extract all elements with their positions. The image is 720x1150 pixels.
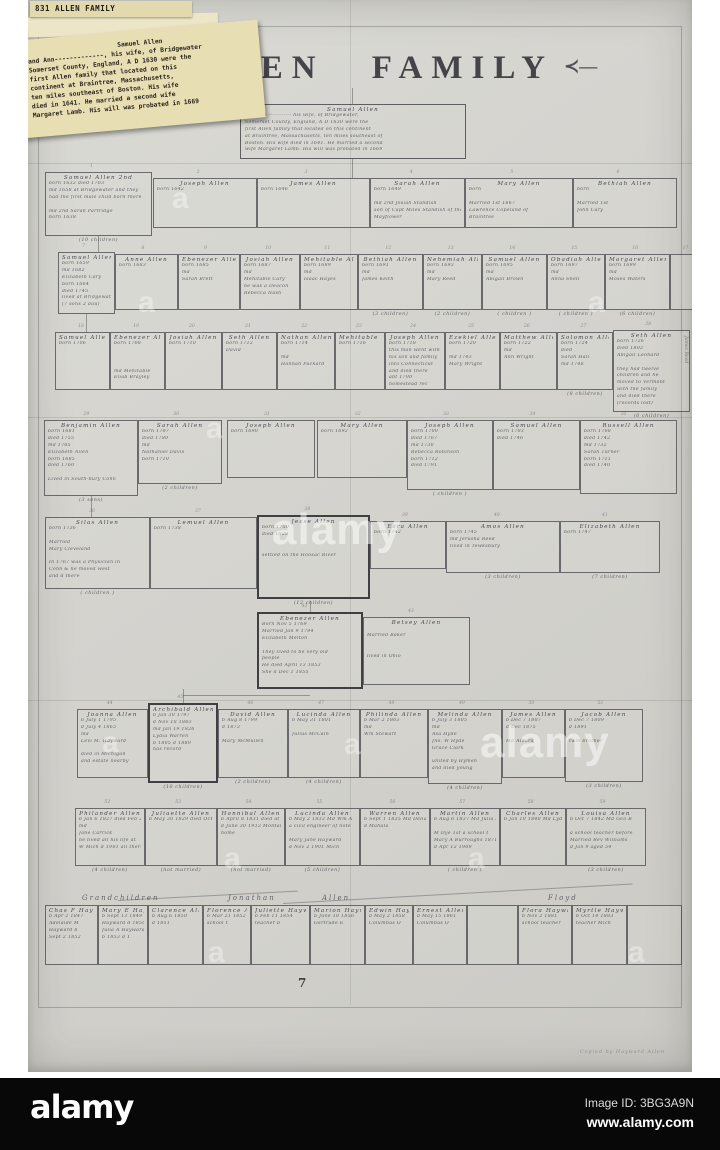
children-note: (not married) — [145, 868, 217, 873]
person-line: Married — [49, 540, 146, 547]
person-line: Md Almira — [506, 739, 561, 746]
box-number: 59 — [600, 800, 606, 805]
box-number: 21 — [245, 324, 251, 329]
person-line: d Jan 9 aged 54 — [570, 845, 642, 852]
person-line: md — [81, 732, 144, 739]
person-box: Ezekiel Allenborn 1720 md 1743Mary Wrigh… — [445, 332, 500, 390]
person-box: Mehitable Allenborn 1689mdIsaac Hayes — [300, 254, 358, 310]
person-line: Mehitable Cary — [244, 277, 296, 284]
person-box: Nehemiah Allenborn 1693mdMary Reed — [423, 254, 482, 310]
person-line: b July 1 1795 — [81, 718, 144, 725]
person-line: born 1693 — [427, 263, 478, 270]
box-number: 55 — [317, 800, 323, 805]
person-line: born 1747 — [564, 530, 656, 537]
box-number: 32 — [355, 412, 361, 417]
person-box: Ernest Allenb May 15 1861Columbus O — [413, 905, 467, 965]
box-number: 42 — [302, 604, 308, 609]
person-line: d Nov 10 1883 — [153, 720, 213, 727]
person-line: born 1720 — [449, 341, 496, 348]
person-line: and died there — [617, 394, 686, 401]
person-line — [222, 732, 284, 739]
person-line — [281, 348, 331, 355]
person-line: born 1642 — [157, 187, 253, 194]
person-line: md 1730 — [411, 443, 489, 450]
person-line: Sarah Brett — [182, 277, 236, 284]
person-line: James Keith — [362, 277, 419, 284]
person-line: born 1711 — [584, 457, 673, 464]
person-line — [49, 202, 148, 209]
children-note: (not married) — [217, 868, 285, 873]
person-line: b May 30 1829 died Oct 2 — [149, 817, 213, 824]
person-line: d 1891 — [569, 725, 639, 732]
box-number: 17 — [683, 246, 689, 251]
person-line: Grace Clark — [432, 746, 498, 753]
person-line: lived in Ohio — [367, 654, 466, 661]
person-line — [114, 348, 161, 355]
alamy-url: www.alamy.com — [587, 1114, 694, 1130]
children-note: (2 children) — [138, 486, 222, 491]
person-line: Hayward b — [49, 928, 94, 935]
person-line: md — [551, 270, 601, 277]
person-line: Mary Cleveland — [49, 547, 146, 554]
person-box: Obadiah Allenborn 1697mdAnna Snell — [547, 254, 605, 310]
person-line: lived in Tewksbury — [450, 544, 556, 551]
person-line: died 1742 — [584, 436, 673, 443]
box-number: 33 — [443, 412, 449, 417]
person-line: Elizabeth Allen — [48, 450, 134, 457]
person-box: Martin Allenb Aug 6 1837 Md Julia S M Dy… — [430, 808, 500, 866]
person-box: Samuel Allen 3rdborn 1659md 1682Elizabet… — [58, 252, 115, 314]
person-line: born 1695 — [486, 263, 543, 270]
person-box — [467, 905, 518, 965]
person-box: Seth Allenborn 1726died 1802Abigail Leon… — [613, 330, 690, 412]
children-note: (2 children) — [218, 780, 288, 785]
person-line — [434, 824, 496, 831]
person-line: born 1664 — [62, 282, 111, 289]
person-line: died 1740 — [584, 463, 673, 470]
box-number: 13 — [448, 246, 454, 251]
section-header: Allen — [322, 894, 350, 902]
box-number: 8 — [141, 246, 144, 251]
person-line: d 1851 — [152, 921, 199, 928]
children-note: (3 children) — [565, 784, 643, 789]
person-box: Joseph Allenborn 1718this man went withh… — [385, 332, 445, 390]
person-line: md 1743 — [449, 355, 496, 362]
box-number: 41 — [602, 513, 608, 518]
box-number: 43 — [408, 609, 414, 614]
person-line: d June 30 1912 Montana — [221, 824, 281, 831]
box-number: 57 — [459, 800, 465, 805]
person-line: Ann Wright — [504, 355, 553, 362]
person-line: he lived all his life at — [79, 838, 141, 845]
person-line: md — [427, 270, 478, 277]
person-line — [367, 647, 466, 654]
person-line: school t — [207, 921, 247, 928]
person-line: Mary Reed — [427, 277, 478, 284]
person-line: Hayward d 1850 — [102, 921, 144, 928]
person-line: and estate nearby — [81, 759, 144, 766]
person-line: Rebecca Robinson — [411, 450, 489, 457]
person-line: b Mar 2 1803 — [364, 718, 424, 725]
person-line: Elizabeth Melton — [262, 636, 358, 643]
person-box: Elizabeth Allenborn 1747 — [560, 521, 660, 573]
person-line: died in Michigan — [81, 752, 144, 759]
person-line: md — [362, 270, 419, 277]
person-line: md — [142, 443, 218, 450]
person-line — [262, 539, 365, 546]
person-box: Lemuel Allenborn 1738 — [150, 517, 257, 589]
person-line: md — [244, 270, 296, 277]
person-line: and d there — [49, 574, 146, 581]
box-number: 24 — [410, 324, 416, 329]
person-line: b Jan 6 1827 died Feb 26 — [79, 817, 141, 824]
person-box: Mary Allenborn 1692 — [317, 420, 407, 478]
box-number: 15 — [571, 246, 577, 251]
person-box: Joseph Allenborn 1642 — [153, 178, 257, 228]
person-line: Sarah Hall — [561, 355, 609, 362]
box-number: 34 — [530, 412, 536, 417]
person-line: home — [221, 831, 281, 838]
box-number: 54 — [246, 800, 252, 805]
person-line: born 1745 — [450, 530, 556, 537]
box-number: 16 — [632, 246, 638, 251]
person-box: Bethiah Allenborn Married 1stJohn Cary — [573, 178, 677, 228]
children-note: (5 children) — [285, 868, 360, 873]
box-number: 28 — [645, 322, 651, 327]
person-line — [292, 725, 356, 732]
children-note: (8 children) — [557, 392, 613, 397]
person-box — [627, 905, 682, 965]
person-line: b Jan 30 1797 — [153, 713, 213, 720]
person-line: md — [281, 355, 331, 362]
person-box: Marion Haywardb June 10 1856Gertrude E — [310, 905, 365, 965]
person-line — [262, 546, 365, 553]
children-note: (12 children) — [257, 601, 370, 606]
compiler-note: Copied by Hayward Allen — [580, 1050, 665, 1055]
section-header: Grandchildren — [82, 894, 160, 902]
person-box: Ebenezer Allenborn 1708 md MehitableElia… — [110, 332, 165, 390]
person-box: Clarence Allenb Aug 6 1850d 1851 — [148, 905, 203, 965]
person-line — [506, 732, 561, 739]
person-line: born 1685 — [182, 263, 236, 270]
person-line: born 1712 — [226, 341, 273, 348]
person-line: born 1750 — [262, 525, 365, 532]
person-line: md 2nd Josiah Standish — [374, 201, 461, 208]
person-name — [631, 908, 678, 914]
person-line: Mayflower — [374, 215, 461, 222]
box-number: 3 — [304, 170, 307, 175]
children-note: (3 sons) — [44, 498, 138, 503]
person-line: b Jan 10 1840 Md Lydia — [504, 817, 562, 824]
person-line: b June 10 1856 — [314, 914, 361, 921]
person-line: born 1687 — [244, 263, 296, 270]
person-line: (7 sons 2 dau) — [62, 302, 111, 309]
box-number: 35 — [621, 412, 627, 417]
person-line — [289, 831, 356, 838]
person-line: b Mar 21 1852 — [207, 914, 247, 921]
person-box: Archibald Allenb Jan 30 1797d Nov 10 188… — [148, 703, 218, 783]
person-box: Josiah Allenborn 1687mdMehitable Caryhe … — [240, 254, 300, 310]
person-box: James Allenborn 1646 — [257, 178, 370, 228]
person-line: a school teacher before — [570, 831, 642, 838]
person-line: Married 1st 1667 — [469, 201, 569, 208]
person-box: Russell Allenborn 1708died 1742md 1732Sa… — [580, 420, 677, 494]
person-line: died 1791 — [411, 463, 489, 470]
person-line: Elizabeth Cary — [62, 275, 111, 282]
person-line: his son and family — [389, 355, 441, 362]
person-box: Samuel Allen 4thborn 1706 — [55, 332, 110, 390]
person-line: born 1716 — [339, 341, 381, 348]
person-line: Eliab Brayley — [114, 375, 161, 382]
person-box: Nathan Allenborn 1714 mdHannah Packard — [277, 332, 335, 390]
section-header: Floyd — [548, 894, 578, 902]
person-line: school teacher — [522, 921, 568, 928]
person-line: Mary McMullen — [222, 739, 284, 746]
person-box: Mehitable Allenborn 1716 — [335, 332, 385, 390]
person-line: born 1710 — [169, 341, 218, 348]
person-box: Charles Allenb Jan 10 1840 Md Lydia — [500, 808, 566, 866]
alamy-footer-bar: alamy Image ID: 3BG3A9N www.alamy.com — [0, 1078, 720, 1150]
person-line: people — [262, 656, 358, 663]
person-line: born 1699 — [609, 263, 666, 270]
children-note: (10 children) — [45, 238, 152, 243]
person-box: Joanna Allenb July 1 1795d July 4 1865md… — [77, 709, 148, 778]
person-box: Anne Allenborn 1683 — [115, 254, 178, 310]
person-line: Columbus O — [417, 921, 463, 928]
person-box: Ezra Allenborn 1742 — [370, 521, 446, 569]
box-number: 53 — [175, 800, 181, 805]
person-line: b May 2 1858 — [369, 914, 409, 921]
person-box: Ebenezer Allenborn 1685mdSarah Brett — [178, 254, 240, 310]
person-line: md 1682 — [62, 268, 111, 275]
person-line: md Jan 19 1826 — [153, 727, 213, 734]
box-number: 19 — [133, 324, 139, 329]
person-line: Wm Stewart — [364, 732, 424, 739]
person-line — [569, 732, 639, 739]
person-line — [674, 263, 692, 270]
children-note: (6 children) — [605, 312, 670, 317]
person-box: Chas F Haywardb Apr 2 1847Adelaide MHayw… — [45, 905, 98, 965]
person-box: Joseph Allenborn 1690 — [227, 420, 315, 478]
person-line: b July 3 1805 — [432, 718, 498, 725]
children-note: ( children ) — [430, 868, 500, 873]
person-line: born 1714 — [281, 341, 331, 348]
person-box: Jesse Allenborn 1750died 1828 settled on… — [257, 515, 370, 599]
margin-note: James Reed — [683, 336, 688, 363]
person-line: died 1780 — [142, 436, 218, 443]
person-box: Bethiah Allenborn 1691mdJames Keith — [358, 254, 423, 310]
person-line: teacher Mich — [576, 921, 623, 928]
page-number: 7 — [298, 976, 306, 990]
person-line: Braintree — [469, 215, 569, 222]
person-line: Jno. W Hyde — [432, 739, 498, 746]
person-line: and died there — [389, 369, 441, 376]
person-line: Sarah Turner — [584, 450, 673, 457]
person-line: born 1710 — [142, 457, 218, 464]
person-box: Benjamin Allenborn 1681died 1755md 1705E… — [44, 420, 138, 496]
box-number: 29 — [83, 412, 89, 417]
person-line — [114, 362, 161, 369]
person-line: died 1760 — [48, 463, 134, 470]
person-line: born 1690 — [231, 429, 311, 436]
box-number: 46 — [247, 701, 253, 706]
person-line — [114, 355, 161, 362]
box-number: 58 — [528, 800, 534, 805]
person-line: born 1649 — [374, 187, 461, 194]
person-line: W Mich d 1901 all there — [79, 845, 141, 852]
person-line: b Aug 6 1837 Md Julia S — [434, 817, 496, 824]
person-line: with the family — [617, 387, 686, 394]
person-box: Sarah Allenborn 1707died 1780mdNathaniel… — [138, 420, 222, 484]
person-line: born 1742 — [374, 530, 442, 537]
person-box — [670, 254, 692, 310]
person-line: Conn & he moved west — [49, 567, 146, 574]
person-line: md — [304, 270, 354, 277]
person-box: Philinda Allenb Mar 2 1803mdWm Stewart — [360, 709, 428, 778]
person-line: has record — [153, 747, 213, 754]
person-line: born 1708 — [114, 341, 161, 348]
person-line: Married Rev Williams — [570, 838, 642, 845]
person-line: Lawrence Copeland of — [469, 208, 569, 215]
person-line: He died April 13 1853 — [262, 663, 358, 670]
person-line: Moses Waters — [609, 277, 666, 284]
person-line: born 1706 — [59, 341, 106, 348]
children-note: (3 children) — [358, 312, 423, 317]
person-line — [374, 194, 461, 201]
person-line: born 1681 — [48, 429, 134, 436]
person-box: Mary E Haywardb Sept 13 1849Hayward d 18… — [98, 905, 148, 965]
box-number: 10 — [265, 246, 271, 251]
person-line: Mary Jane Hayward — [289, 838, 356, 845]
person-line: b May 2 1833 Md Wm A — [289, 817, 356, 824]
box-number: 5 — [510, 170, 513, 175]
person-line: John Cary — [577, 208, 673, 215]
person-box: Myrtle Haywardb Oct 14 1883teacher Mich — [572, 905, 627, 965]
person-line: Rebecca Nash — [244, 291, 296, 298]
person-name — [471, 908, 514, 914]
person-box: David Allenb Aug 8 1799d 1873 Mary McMul… — [218, 709, 288, 778]
person-line: M Dye 1st a school t — [434, 831, 496, 838]
person-line: md — [486, 270, 543, 277]
children-note: ( children ) — [482, 312, 547, 317]
person-line: d Dec 1875 — [506, 725, 561, 732]
person-box: Sarah Allenborn 1649 md 2nd Josiah Stand… — [370, 178, 465, 228]
children-note: (2 children) — [423, 312, 482, 317]
person-line: he was a Deacon — [244, 284, 296, 291]
person-box: Juliaette Allenb May 30 1829 died Oct 2 — [145, 808, 217, 866]
person-line: md 1732 — [584, 443, 673, 450]
person-line: Columbus O — [369, 921, 409, 928]
person-line: Jane Carrick — [79, 831, 141, 838]
person-line: born 1691 — [362, 263, 419, 270]
person-box: Josiah Allenborn 1710 — [165, 332, 222, 390]
children-note: ( children ) — [407, 492, 493, 497]
person-line: She d Dec 1 1855 — [262, 670, 358, 677]
person-box: Lucinda Allenb May 2 1833 Md Wm Aa civil… — [285, 808, 360, 866]
person-line: md — [79, 824, 141, 831]
box-number: 27 — [581, 324, 587, 329]
person-line: In 1767 was a Physician in — [49, 560, 146, 567]
children-note: (3 children) — [566, 868, 646, 873]
person-line: died 1767 — [411, 436, 489, 443]
person-box: Ebenezer AllenBorn Nov 5 1769Married Jan… — [257, 612, 363, 689]
person-box: Matthew Allenborn 1722mdAnn Wright — [500, 332, 557, 390]
person-line: born 1736 — [49, 526, 146, 533]
person-line: b Aug 8 1799 — [222, 718, 284, 725]
person-box: Hannibal Allenb April 8 1831 died atd Ju… — [217, 808, 285, 866]
person-line: Isaac Hayes — [304, 277, 354, 284]
person-line: born 1722 — [504, 341, 553, 348]
person-line — [367, 626, 466, 633]
person-line: Julius McCain — [292, 732, 356, 739]
person-line: had the first male child born there — [49, 195, 148, 202]
person-line: d Mahala — [364, 824, 426, 831]
children-note: ( children ) — [547, 312, 605, 317]
person-line: Asa Hyde — [432, 732, 498, 739]
person-line: b Aug 6 1850 — [152, 914, 199, 921]
person-box: Warren Allenb Sept 1 1835 Md Deliad Maha… — [360, 808, 430, 866]
box-number: 52 — [104, 800, 110, 805]
children-note: (4 children) — [428, 786, 502, 791]
box-number: 18 — [78, 324, 84, 329]
person-line: born — [469, 187, 569, 194]
person-line: md — [364, 725, 424, 732]
box-number: 44 — [107, 701, 113, 706]
person-box: Margaret Allenborn 1699mdMoses Waters — [605, 254, 670, 310]
person-box: Samuel Allenborn 1703died 1746 — [493, 420, 580, 490]
person-box: Edwin Haywardb May 2 1858Columbus O — [365, 905, 413, 965]
person-line: son of Capt Miles Standish of the — [374, 208, 461, 215]
children-note: ( children ) — [45, 591, 150, 596]
box-number: 2 — [197, 170, 200, 175]
person-line: they had twelve — [617, 367, 686, 374]
box-number: 12 — [385, 246, 391, 251]
person-line: David — [226, 348, 273, 355]
person-box: Jacob Allenb Dec 7 1809d 1891 twin broth… — [565, 709, 643, 782]
person-line: born 1718 — [389, 341, 441, 348]
person-line: born 1692 — [321, 429, 403, 436]
person-line: md 1748 — [561, 362, 609, 369]
person-line: children and he — [617, 373, 686, 380]
person-line: d July 4 1865 — [81, 725, 144, 732]
person-line: b Oct 7 1842 Md Geo B — [570, 817, 642, 824]
box-number: 36 — [89, 509, 95, 514]
person-line: died 1828 — [262, 532, 365, 539]
person-line: md — [182, 270, 236, 277]
children-note: (7 children) — [560, 575, 660, 580]
person-line: born 1638 — [49, 215, 148, 222]
person-line: Abigail Leonard — [617, 353, 686, 360]
box-number: 14 — [509, 246, 515, 251]
box-number: 56 — [389, 800, 395, 805]
person-line: died — [561, 348, 609, 355]
box-number: 1 — [90, 164, 93, 169]
genealogy-chart: 1Samuel Allen 2ndborn 1632 died 1703md 1… — [28, 0, 692, 1072]
person-line: born 1697 — [551, 263, 601, 270]
person-line: md Jerusha Reed — [450, 537, 556, 544]
person-line: born 1646 — [261, 187, 366, 194]
person-line: Hannah Packard — [281, 362, 331, 369]
image-id-text: Image ID: 3BG3A9N — [585, 1096, 694, 1110]
person-box: Lucinda Allenb May 31 1801 Julius McCain — [288, 709, 360, 778]
person-line: Gertrude E — [314, 921, 361, 928]
person-line: Married Jan 9 1794 — [262, 629, 358, 636]
person-line — [577, 194, 673, 201]
person-line: died 1746 — [497, 436, 576, 443]
person-line: died 1802 — [617, 346, 686, 353]
person-line: md 1658 at Bridgewater and they — [49, 188, 148, 195]
person-box: James Allenb Dec 7 1807d Dec 1875 Md Alm… — [502, 709, 565, 778]
